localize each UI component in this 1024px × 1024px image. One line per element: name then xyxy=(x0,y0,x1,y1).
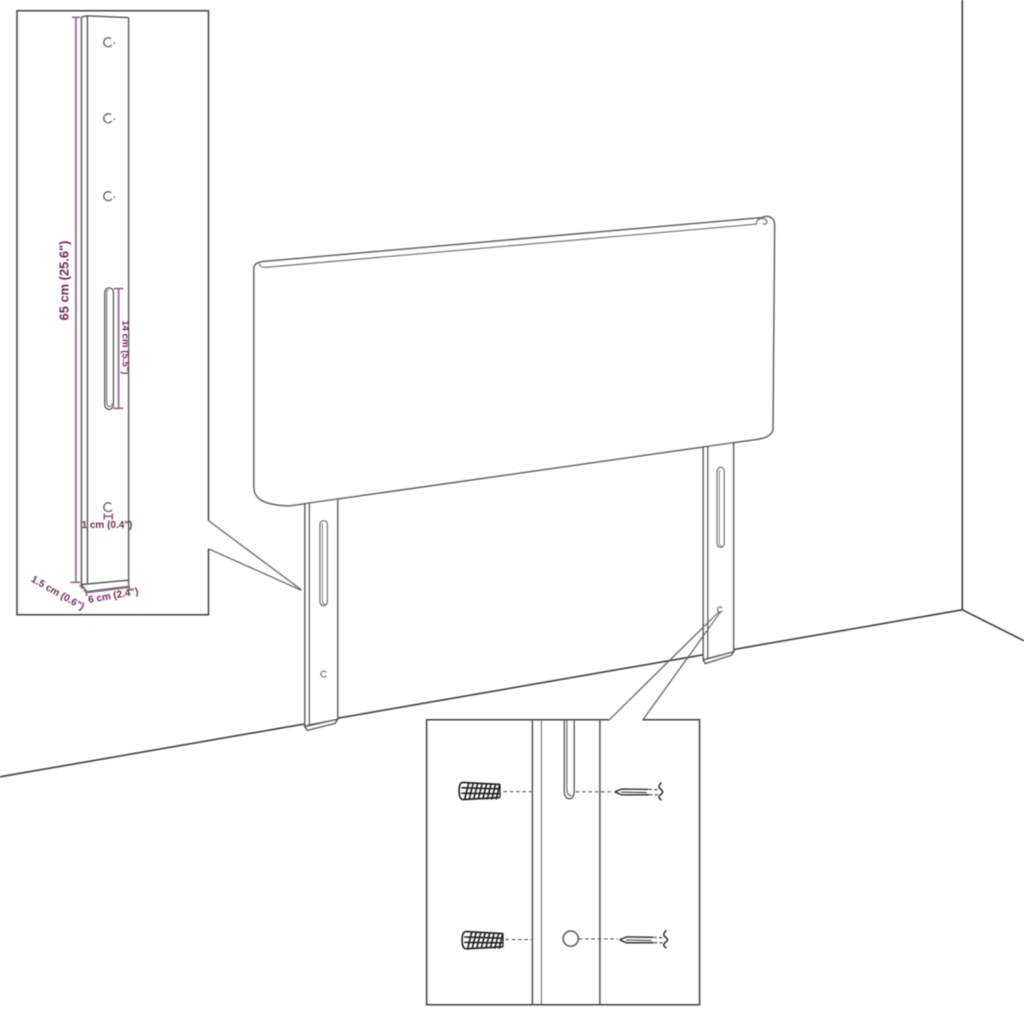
svg-text:1 cm (0.4"): 1 cm (0.4") xyxy=(82,520,133,531)
svg-text:65 cm (25.6"): 65 cm (25.6") xyxy=(57,241,72,321)
svg-text:14 cm (5.5"): 14 cm (5.5") xyxy=(119,320,130,374)
